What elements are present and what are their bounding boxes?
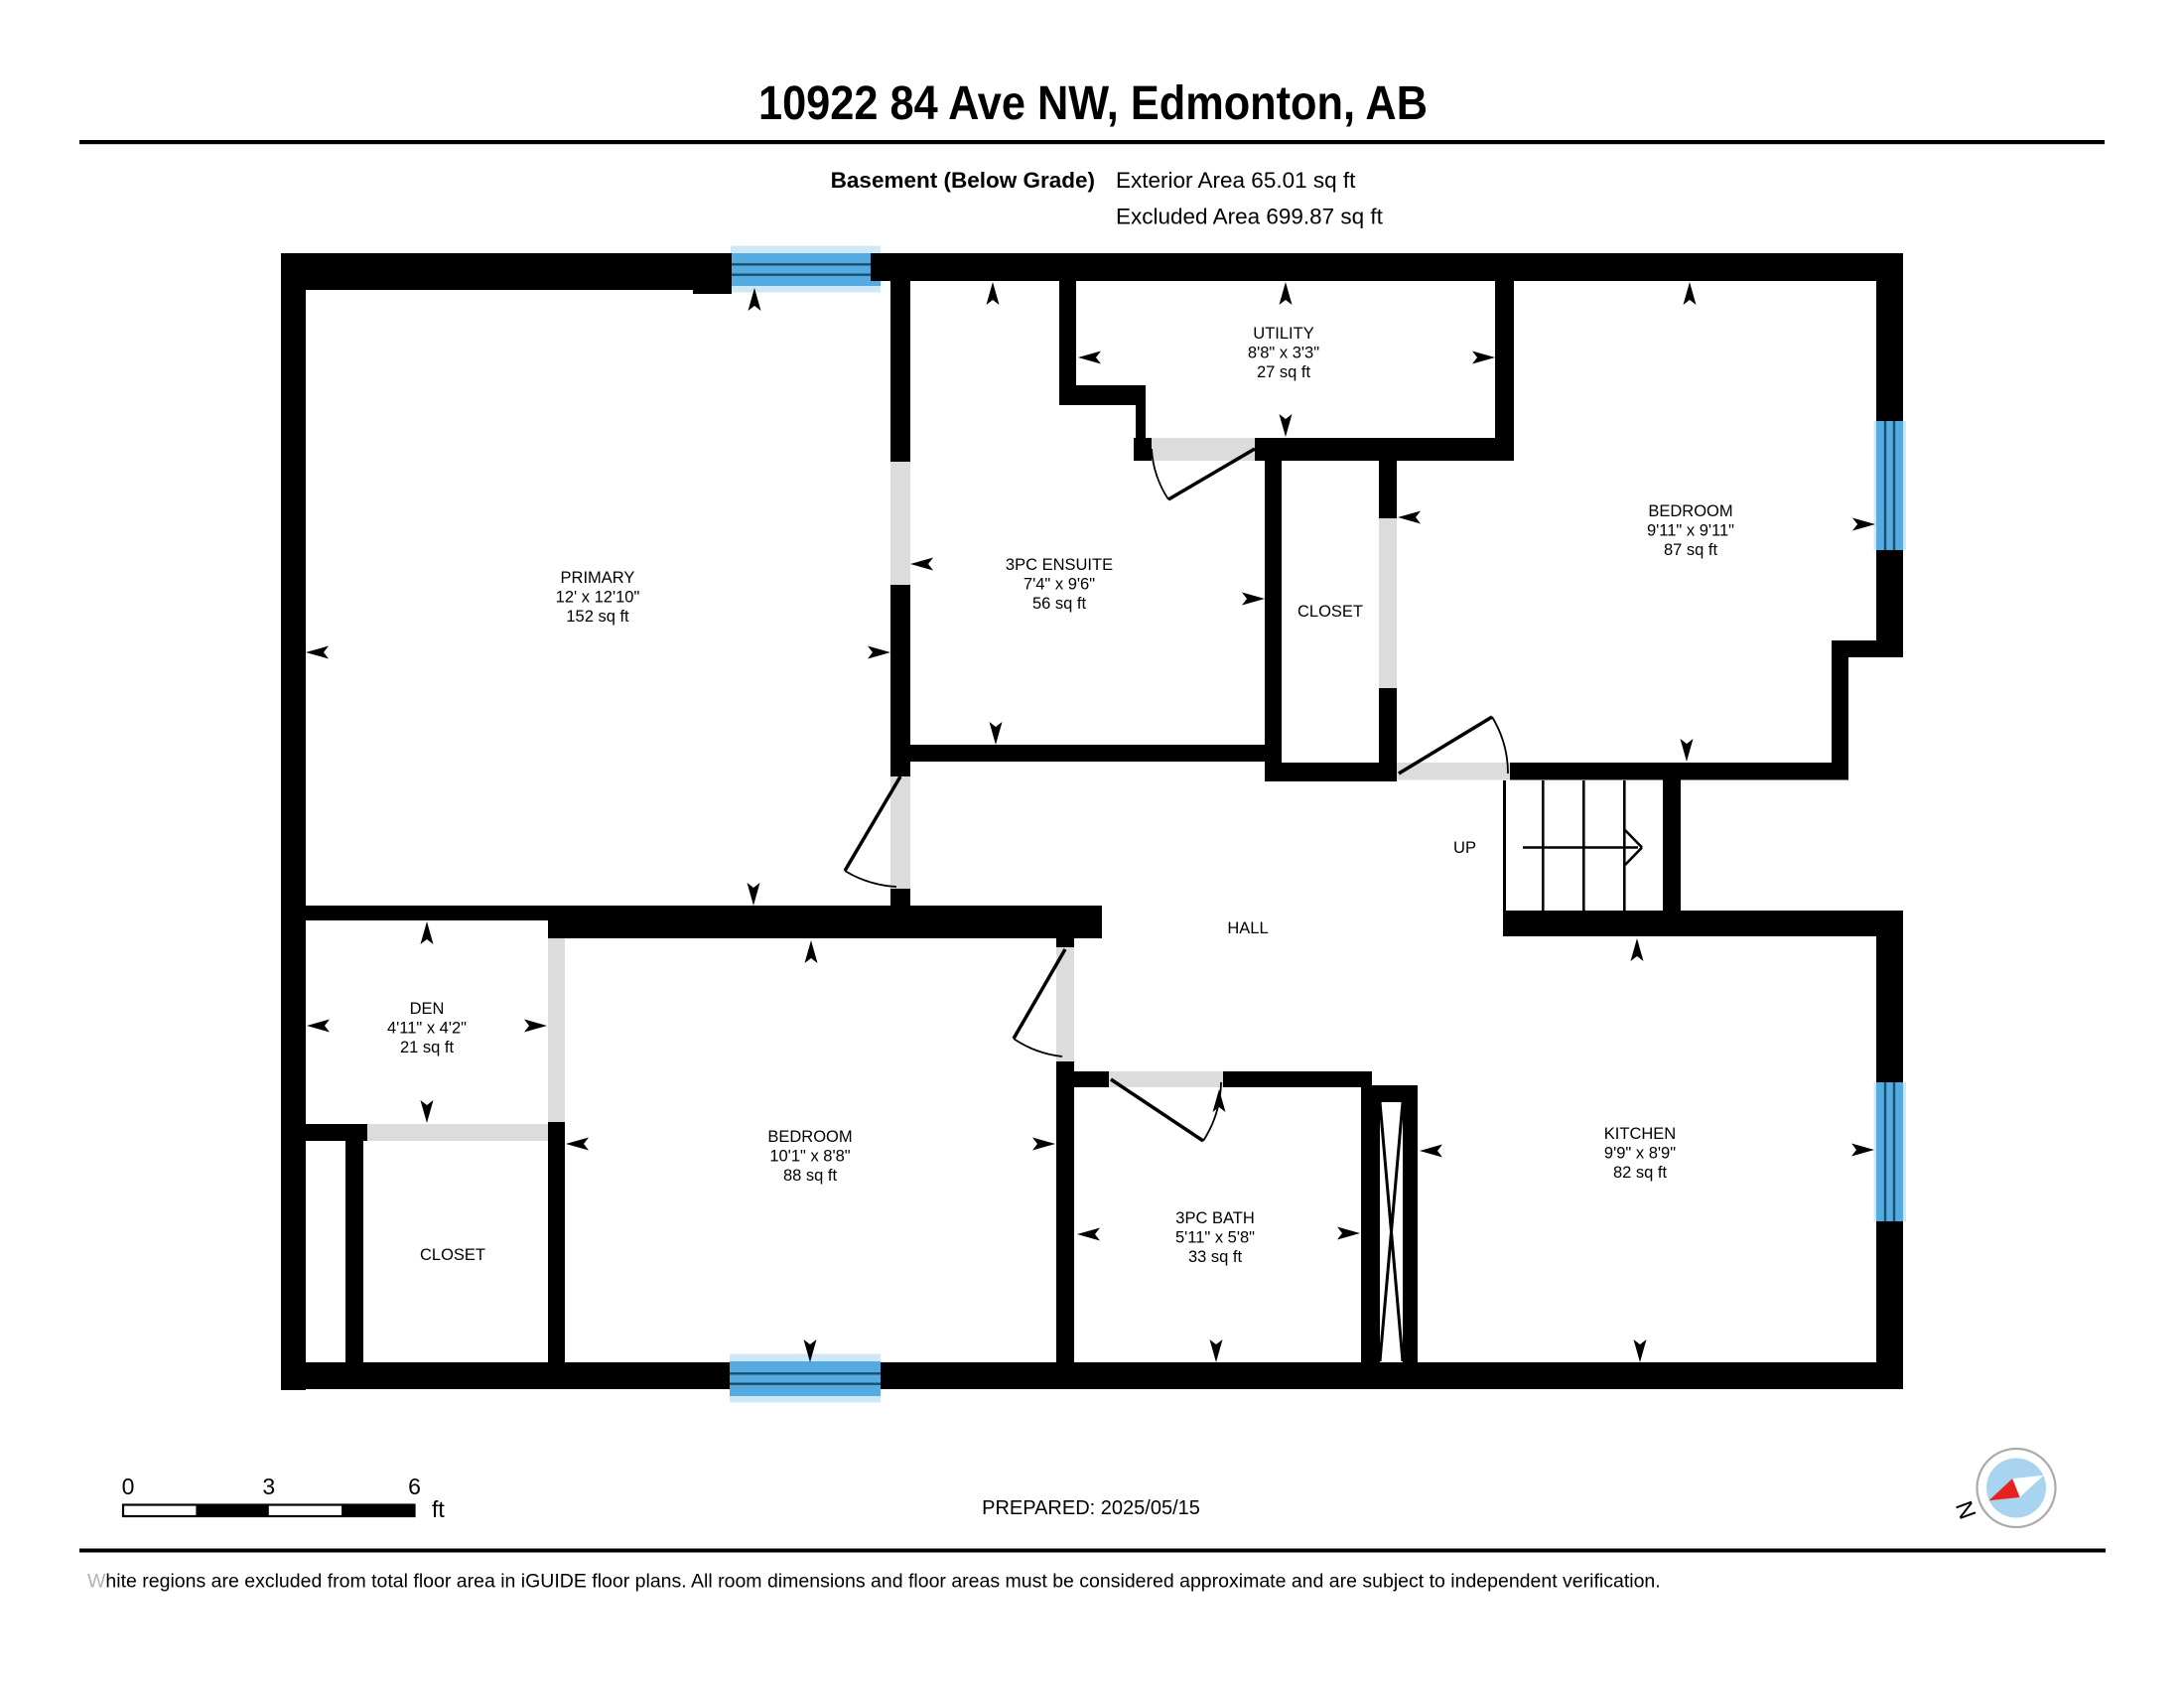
svg-text:8'8" x 3'3": 8'8" x 3'3" xyxy=(1248,345,1319,362)
svg-text:UP: UP xyxy=(1453,839,1476,857)
svg-text:12' x 12'10": 12' x 12'10" xyxy=(556,589,640,607)
svg-text:27 sq ft: 27 sq ft xyxy=(1257,363,1311,381)
svg-text:88 sq ft: 88 sq ft xyxy=(783,1167,838,1185)
svg-text:CLOSET: CLOSET xyxy=(1297,603,1363,621)
svg-text:3PC BATH: 3PC BATH xyxy=(1175,1209,1254,1227)
svg-text:3PC ENSUITE: 3PC ENSUITE xyxy=(1006,556,1113,574)
svg-text:33 sq ft: 33 sq ft xyxy=(1188,1248,1243,1266)
svg-text:56 sq ft: 56 sq ft xyxy=(1032,595,1087,613)
svg-text:Excluded Area 699.87 sq ft: Excluded Area 699.87 sq ft xyxy=(1116,205,1384,229)
svg-text:CLOSET: CLOSET xyxy=(420,1246,485,1264)
svg-text:152 sq ft: 152 sq ft xyxy=(566,608,629,626)
svg-text:Basement (Below Grade): Basement (Below Grade) xyxy=(831,168,1095,193)
svg-text:4'11" x 4'2": 4'11" x 4'2" xyxy=(387,1020,467,1038)
svg-text:KITCHEN: KITCHEN xyxy=(1604,1125,1676,1143)
svg-text:21 sq ft: 21 sq ft xyxy=(400,1039,455,1056)
svg-text:DEN: DEN xyxy=(410,1000,445,1018)
svg-text:7'4" x 9'6": 7'4" x 9'6" xyxy=(1024,576,1095,594)
svg-text:BEDROOM: BEDROOM xyxy=(767,1128,852,1146)
svg-text:10'1" x 8'8": 10'1" x 8'8" xyxy=(769,1148,850,1166)
svg-text:ft: ft xyxy=(432,1496,445,1522)
svg-text:9'11" x 9'11": 9'11" x 9'11" xyxy=(1647,522,1734,540)
svg-text:Exterior Area 65.01 sq ft: Exterior Area 65.01 sq ft xyxy=(1116,168,1356,193)
svg-text:5'11" x 5'8": 5'11" x 5'8" xyxy=(1175,1229,1255,1247)
svg-text:White regions are excluded fro: White regions are excluded from total fl… xyxy=(87,1571,1661,1593)
svg-text:10922 84 Ave NW, Edmonton, AB: 10922 84 Ave NW, Edmonton, AB xyxy=(758,77,1428,130)
svg-text:PRIMARY: PRIMARY xyxy=(561,569,635,587)
svg-text:82 sq ft: 82 sq ft xyxy=(1613,1164,1668,1182)
svg-text:PREPARED: 2025/05/15: PREPARED: 2025/05/15 xyxy=(982,1497,1200,1519)
svg-text:6: 6 xyxy=(408,1474,421,1499)
svg-text:UTILITY: UTILITY xyxy=(1253,325,1313,343)
svg-text:87 sq ft: 87 sq ft xyxy=(1664,541,1718,559)
svg-text:3: 3 xyxy=(262,1474,275,1499)
svg-text:0: 0 xyxy=(122,1474,135,1499)
svg-text:9'9" x 8'9": 9'9" x 8'9" xyxy=(1604,1145,1676,1163)
svg-text:BEDROOM: BEDROOM xyxy=(1648,502,1732,520)
svg-text:HALL: HALL xyxy=(1227,919,1268,937)
